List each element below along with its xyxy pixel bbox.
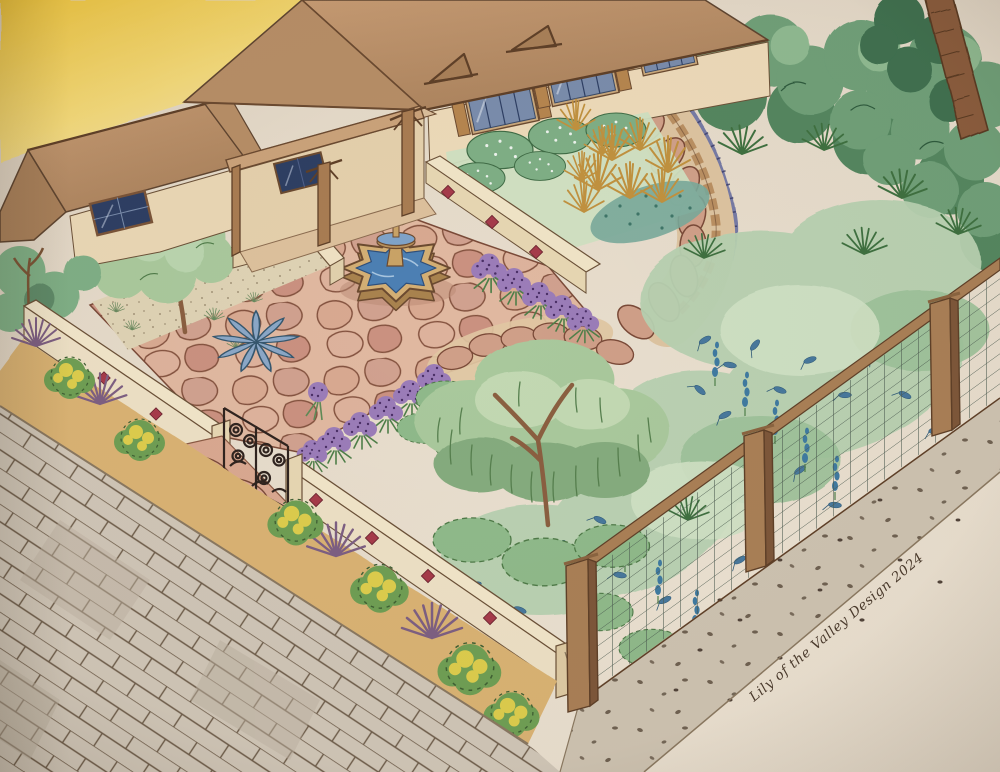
watercolor-garden-painting: Lily of the Valley Design 2024 bbox=[0, 0, 1000, 772]
